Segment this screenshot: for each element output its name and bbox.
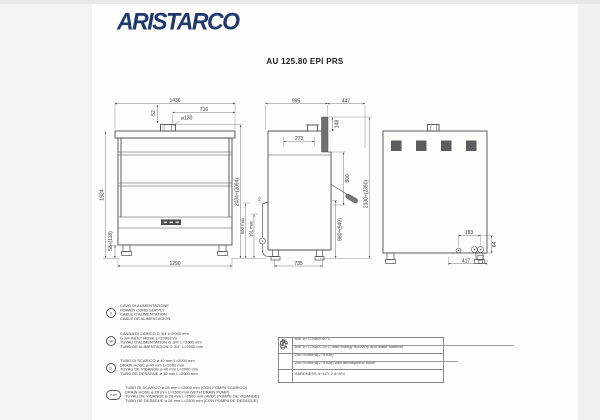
spec-section-temperature: Min 10°C-MAX 60°C Min 10°C-MAX 25°C with…: [279, 338, 443, 353]
legend-item-inlet-hose: W CANNA DI CARICO G 3/4 L=2000 mm G 3/4 …: [106, 332, 250, 350]
dim-front-chimney-offset: 52: [151, 110, 157, 116]
dim-side-inner-width: 273: [295, 136, 304, 142]
spec-section-pressure: 200÷500kPa(2÷5 Bar) 200÷500kPa(2÷5 Bar) …: [279, 353, 443, 369]
water-spec-table: Min 10°C-MAX 60°C Min 10°C-MAX 25°C with…: [278, 337, 444, 383]
dim-front-total-height: 2034÷(2094): [235, 178, 241, 207]
legend-symbol-e: E: [106, 308, 116, 318]
legend-symbol-d-label: D: [110, 366, 113, 370]
legend-line: TUBO DE DESAGUE ⌀ 40 mm L=2000 mm: [120, 372, 185, 376]
spec-row-temp-energy-recovery: Min 10°C-MAX 25°C with energy recovery a…: [293, 345, 514, 353]
dim-side-table-height: 880÷(940): [338, 218, 344, 241]
hood-handle: [345, 193, 359, 203]
dim-side-hood-extension: 447: [342, 98, 351, 104]
dim-side-gap: 10: [258, 197, 262, 201]
dim-rear-conn-y: 64: [492, 242, 498, 248]
dim-front-chimney-dia: ⌀130: [181, 116, 193, 122]
dim-side-hood-stroke: 800: [345, 174, 351, 183]
dim-side-drain-max: 600 max: [240, 217, 245, 234]
legend-symbol-d-dp-label: D-DP: [110, 394, 117, 397]
spec-row-temp-standard: Min 10°C-MAX 60°C: [293, 338, 514, 345]
datasheet-page: ARISTARCO AU 125.80 EPI PRS: [0, 0, 600, 420]
water-drop-icon: [279, 370, 293, 382]
dim-side-depth: 995: [292, 98, 301, 104]
spec-section-hardness: HARDNESS 5÷14°f-2.8÷8°d: [279, 369, 443, 382]
front-dimension-lines: [106, 104, 241, 267]
front-view: 1436 716 52 ⌀130 1924 58÷(118) 2034÷(209…: [100, 98, 244, 268]
spec-row-pressure-standard: 200÷500kPa(2÷5 Bar): [293, 354, 458, 361]
legend-symbol-w: W: [106, 336, 116, 346]
dim-front-body-height: 1924: [100, 189, 106, 200]
front-control-panel: [161, 220, 181, 226]
dim-side-drain-min: 191 max: [249, 220, 254, 237]
legend-item-power-cord: E CAVO DI ALIMENTAZIONE POWER CORD SUPPL…: [106, 304, 250, 322]
front-view-outline: [115, 125, 235, 256]
dim-side-total-height: 2330÷(2390): [364, 180, 370, 209]
dim-rear-conn-x: 183: [465, 230, 474, 236]
dim-front-feet-height: 58÷(118): [108, 231, 114, 251]
dim-side-base-depth: 735: [294, 261, 303, 267]
water-tap-icon: [279, 354, 293, 369]
legend-symbol-d-dp: D-DP: [106, 390, 121, 400]
legend-symbol-e-label: E: [110, 311, 112, 315]
dim-side-hood-bar: 148: [335, 120, 341, 129]
dim-front-base-width: 1290: [169, 261, 180, 267]
side-view: 995 447 273 148 800 880÷(940) 2330÷(2390…: [240, 98, 372, 267]
spec-row-hardness: HARDNESS 5÷14°f-2.8÷8°d: [293, 370, 443, 382]
rear-view: 183 64 417: [383, 125, 498, 266]
legend-line: CABLE DE ALIMENTACION: [120, 317, 185, 321]
dim-front-right-width: 716: [200, 107, 209, 113]
rear-extension-lines: [449, 234, 494, 266]
dim-front-total-width: 1436: [169, 98, 180, 104]
legend-line: TUBO DE DESAGUE ⌀ 28 mm L=2500 mm (CON P…: [125, 399, 190, 403]
legend-symbol-w-label: W: [109, 339, 112, 343]
legend-item-drain-pump-hose: D-DP TUBO DI SCARICO ⌀ 28 mm L=2500 mm (…: [106, 386, 255, 404]
dim-rear-conn-base: 417: [462, 258, 471, 264]
front-extension-lines: [103, 102, 243, 268]
legend-item-drain-hose: D TUBO DI SCARICO ⌀ 40 mm L=2000 mm DRAI…: [106, 359, 250, 377]
legend-line: TUBO DE ALIMENTACION G 3/4" L=2000 mm: [120, 345, 185, 349]
spec-row-pressure-boiler: 200÷500kPa(2÷5 Bar) with atmospheric boi…: [293, 361, 458, 369]
rear-vents: [391, 141, 477, 152]
side-extension-lines: [242, 105, 372, 268]
drain-hose: [260, 202, 279, 257]
legend-symbol-d: D: [106, 363, 116, 373]
